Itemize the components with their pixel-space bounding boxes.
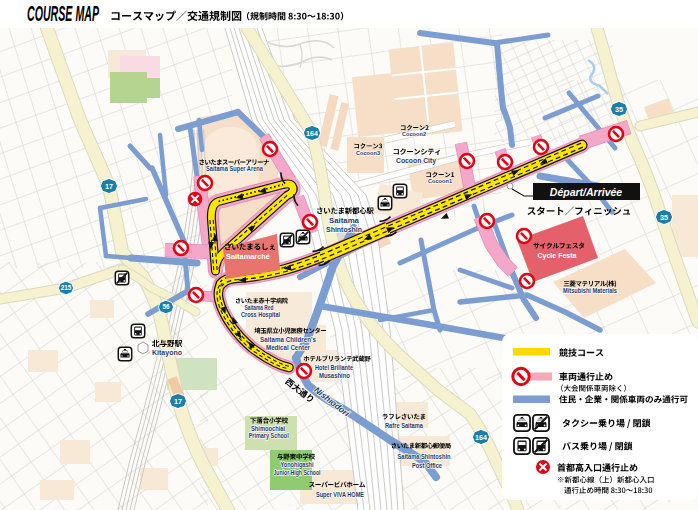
svg-text:Primary School: Primary School [249, 432, 289, 440]
svg-text:Départ/Arrivée: Départ/Arrivée [550, 186, 623, 198]
svg-text:164: 164 [306, 129, 318, 138]
svg-text:Hotel Brillante: Hotel Brillante [315, 364, 353, 371]
svg-text:Cocoon2: Cocoon2 [402, 131, 427, 137]
svg-text:Cycle Festa: Cycle Festa [538, 252, 577, 260]
svg-text:Post Office: Post Office [412, 462, 442, 469]
svg-text:17: 17 [174, 397, 182, 406]
svg-text:Saitama Super Arena: Saitama Super Arena [206, 165, 263, 173]
svg-text:Rafre Saitama: Rafre Saitama [385, 422, 423, 429]
svg-text:Super VIVA HOME: Super VIVA HOME [316, 491, 365, 499]
svg-text:Medical Center: Medical Center [266, 344, 310, 351]
svg-text:17: 17 [105, 182, 113, 191]
svg-text:COURSE MAP: COURSE MAP [27, 1, 99, 26]
svg-text:Kitayono: Kitayono [152, 348, 182, 357]
svg-text:Saitama Shintoshin: Saitama Shintoshin [398, 453, 451, 460]
svg-text:Saitamarché: Saitamarché [226, 252, 270, 261]
svg-text:215: 215 [61, 284, 72, 291]
svg-text:56: 56 [162, 303, 170, 310]
svg-text:Yonohigashi: Yonohigashi [281, 461, 314, 469]
svg-text:Cocoon City: Cocoon City [396, 156, 437, 165]
svg-text:Saitama Red: Saitama Red [245, 304, 274, 311]
svg-text:Saitama Children's: Saitama Children's [260, 336, 316, 343]
svg-text:Cocoon3: Cocoon3 [356, 150, 381, 156]
svg-text:35: 35 [660, 213, 668, 222]
svg-text:Musashino: Musashino [319, 372, 350, 379]
svg-text:Cocoon1: Cocoon1 [428, 178, 453, 184]
svg-text:Cross Hospital: Cross Hospital [241, 311, 280, 319]
svg-text:35: 35 [615, 105, 623, 114]
svg-text:Saitama: Saitama [329, 216, 360, 225]
svg-text:Shintoshin: Shintoshin [326, 225, 362, 234]
svg-text:164: 164 [475, 433, 487, 442]
svg-text:Mitsubishi Materials: Mitsubishi Materials [563, 287, 617, 294]
svg-text:Junior High School: Junior High School [274, 469, 321, 477]
